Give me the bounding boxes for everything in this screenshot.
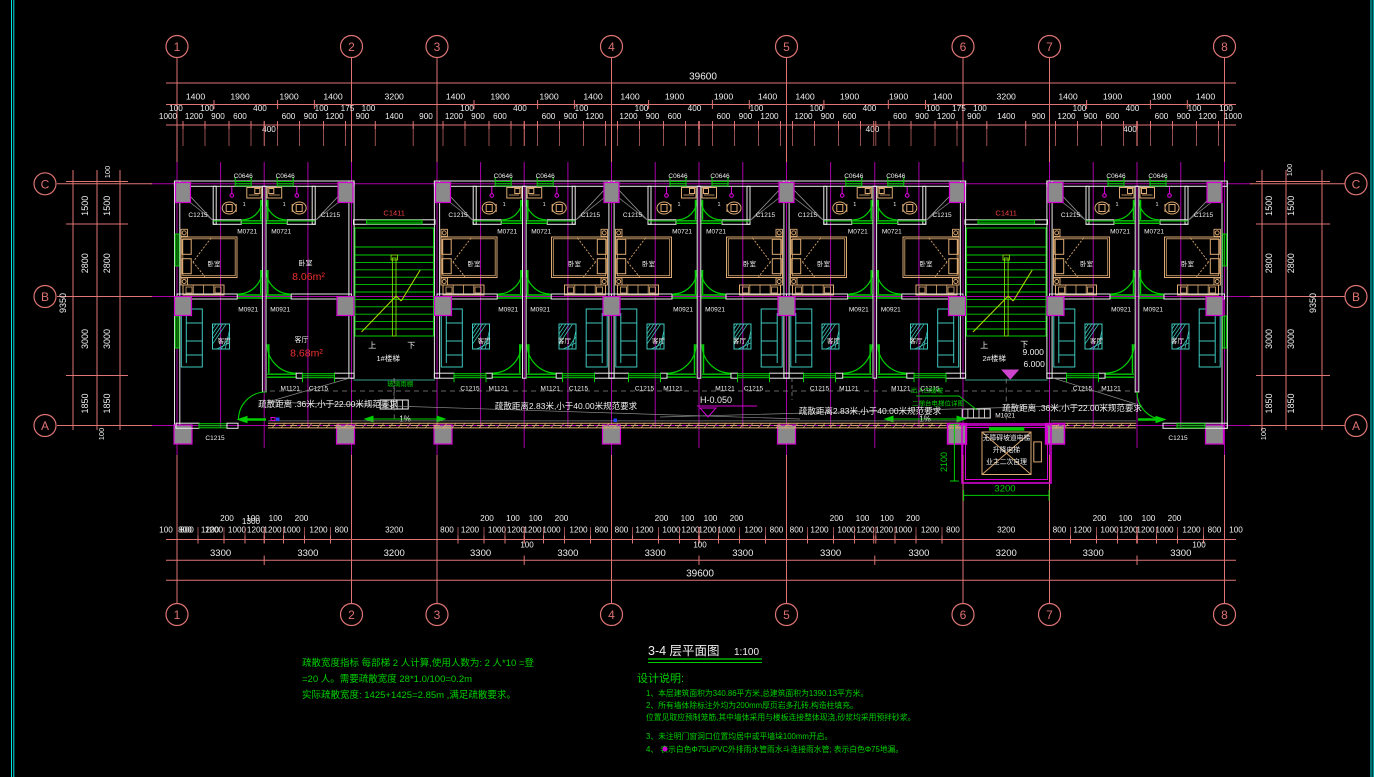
svg-text:C0646: C0646 [536,173,556,180]
svg-text:1200: 1200 [569,526,588,535]
svg-text:6.000: 6.000 [1024,359,1046,369]
svg-text:1900: 1900 [889,92,908,102]
svg-text:100: 100 [169,104,183,113]
svg-text:1900: 1900 [230,92,249,102]
svg-text:900: 900 [739,112,753,121]
svg-text:1: 1 [503,202,506,208]
svg-text:C: C [41,177,50,191]
svg-text:900: 900 [564,112,578,121]
svg-text:800: 800 [1208,526,1222,535]
svg-text:600: 600 [282,112,296,121]
svg-text:1400: 1400 [758,92,777,102]
svg-text:1200: 1200 [1073,526,1092,535]
svg-text:M0721: M0721 [706,229,726,236]
svg-text:8: 8 [1221,40,1228,54]
svg-text:900: 900 [471,112,485,121]
svg-text:C1411: C1411 [995,209,1017,218]
svg-text:200: 200 [655,514,669,523]
svg-text:100: 100 [575,104,589,113]
svg-text:B: B [1352,290,1360,304]
svg-text:无障碍坡道电梯: 无障碍坡道电梯 [983,433,1031,442]
svg-text:100: 100 [704,514,718,523]
svg-text:1900: 1900 [279,92,298,102]
svg-text:卧室: 卧室 [743,259,757,268]
svg-text:8: 8 [1221,608,1228,622]
svg-text:客厅: 客厅 [478,336,492,345]
svg-text:1:100: 1:100 [734,647,759,658]
svg-text:100: 100 [810,104,824,113]
svg-text:1400: 1400 [795,92,814,102]
svg-text:175: 175 [952,104,966,113]
svg-text:二梯台电梯位详图: 二梯台电梯位详图 [912,399,964,408]
svg-text:卧室: 卧室 [1080,259,1094,268]
svg-text:3300: 3300 [210,548,231,559]
svg-text:900: 900 [1084,112,1098,121]
svg-text:M1121: M1121 [488,386,508,393]
svg-text:200: 200 [220,514,234,523]
svg-text:A: A [41,419,49,433]
svg-text:1200: 1200 [921,526,940,535]
svg-text:C1215: C1215 [205,435,225,442]
svg-text:39600: 39600 [686,569,714,580]
svg-text:3200: 3200 [384,548,405,559]
svg-text:1400: 1400 [997,112,1016,121]
svg-text:C0646: C0646 [1106,173,1126,180]
svg-text:100: 100 [1285,164,1294,177]
svg-text:3200: 3200 [385,526,404,535]
svg-text:C0646: C0646 [494,173,514,180]
svg-text:3200: 3200 [996,548,1017,559]
svg-text:3300: 3300 [1083,548,1104,559]
svg-text:1200: 1200 [445,112,464,121]
svg-text:3200: 3200 [997,526,1016,535]
svg-text:卧室: 卧室 [920,259,934,268]
svg-text:1400: 1400 [323,92,342,102]
svg-text:H-0.050: H-0.050 [700,395,732,405]
svg-text:1200: 1200 [619,112,638,121]
svg-text:2800: 2800 [80,253,90,273]
svg-text:100: 100 [1259,428,1268,441]
svg-text:卧室: 卧室 [299,259,313,268]
svg-text:1500: 1500 [80,196,90,216]
svg-text:100: 100 [362,104,376,113]
svg-text:M0921: M0921 [881,307,901,314]
svg-text:1200: 1200 [760,112,779,121]
svg-text:1900: 1900 [714,92,733,102]
svg-text:3000: 3000 [1286,329,1296,349]
svg-text:200: 200 [730,514,744,523]
svg-text:M0721: M0721 [672,229,692,236]
svg-text:3000: 3000 [80,329,90,349]
svg-text:M0721: M0721 [848,229,868,236]
svg-text:C1215: C1215 [569,386,589,393]
svg-text:客厅: 客厅 [1171,336,1185,345]
svg-text:900: 900 [211,112,225,121]
svg-text:600: 600 [717,112,731,121]
svg-text:1%: 1% [399,415,411,424]
svg-text:100: 100 [1119,514,1133,523]
svg-text:200: 200 [906,514,920,523]
svg-text:C1215: C1215 [798,212,818,219]
svg-text:1: 1 [283,202,286,208]
svg-text:M0921: M0921 [530,307,550,314]
svg-text:1200: 1200 [856,526,875,535]
svg-text:C1215: C1215 [810,386,830,393]
svg-text:900: 900 [1032,112,1046,121]
svg-text:1: 1 [243,202,246,208]
svg-text:M1121: M1121 [280,386,300,393]
svg-text:1000: 1000 [228,526,247,535]
svg-text:3300: 3300 [732,548,753,559]
svg-text:M0721: M0721 [531,229,551,236]
svg-text:1200: 1200 [1198,112,1217,121]
svg-text:1200: 1200 [875,526,894,535]
svg-text:100: 100 [269,514,283,523]
svg-text:客厅: 客厅 [827,336,841,345]
svg-text:100: 100 [973,104,987,113]
svg-text:客厅: 客厅 [558,336,572,345]
svg-text:M0721: M0721 [1144,229,1164,236]
svg-text:A: A [1352,419,1360,433]
svg-text:C1215: C1215 [635,386,655,393]
svg-text:卧室: 卧室 [642,259,656,268]
svg-text:1400: 1400 [933,92,952,102]
svg-text:100: 100 [97,428,106,441]
svg-text:200: 200 [295,514,309,523]
svg-text:M0721: M0721 [237,229,257,236]
svg-text:M0921: M0921 [1111,307,1131,314]
svg-text:设计说明:: 设计说明: [637,671,684,685]
svg-text:8.06m²: 8.06m² [292,271,325,283]
svg-text:C1215: C1215 [932,212,952,219]
svg-text:2#楼梯: 2#楼梯 [983,353,1007,363]
svg-text:3、未注明门窗洞口位置均居中或平墙垛100mm开启。: 3、未注明门窗洞口位置均居中或平墙垛100mm开启。 [646,731,832,741]
svg-text:M1121: M1121 [540,386,560,393]
svg-text:1900: 1900 [1103,92,1122,102]
svg-text:1400: 1400 [1196,92,1215,102]
svg-text:9.000: 9.000 [1023,347,1045,357]
svg-text:1000: 1000 [282,526,301,535]
svg-text:C0646: C0646 [276,173,296,180]
svg-text:5: 5 [783,40,790,54]
svg-text:C1215: C1215 [1194,212,1214,219]
svg-text:1%: 1% [919,415,931,424]
svg-text:200: 200 [555,514,569,523]
svg-text:客厅: 客厅 [295,335,309,344]
svg-text:3300: 3300 [908,548,929,559]
svg-text:1200: 1200 [309,526,328,535]
svg-text:900: 900 [304,112,318,121]
svg-text:M1121: M1121 [839,386,859,393]
svg-text:2800: 2800 [102,253,112,273]
svg-text:M0921: M0921 [1143,307,1163,314]
svg-text:客厅: 客厅 [652,336,666,345]
svg-text:M0921: M0921 [849,307,869,314]
svg-text:1: 1 [543,202,546,208]
svg-text:100: 100 [103,166,112,179]
svg-text:900: 900 [1177,112,1191,121]
svg-text:800: 800 [178,526,192,535]
svg-text:C1215: C1215 [1168,435,1188,442]
svg-text:C0646: C0646 [844,173,864,180]
svg-text:1200: 1200 [263,526,282,535]
svg-text:1900: 1900 [840,92,859,102]
svg-text:400: 400 [863,104,877,113]
svg-text:1: 1 [677,202,680,208]
svg-text:M0921: M0921 [673,307,693,314]
svg-text:1400: 1400 [385,112,404,121]
svg-text:175: 175 [341,104,355,113]
svg-text:3200: 3200 [385,92,404,102]
svg-text:M0921: M0921 [498,307,518,314]
svg-text:1400: 1400 [1058,92,1077,102]
svg-text:卧室: 卧室 [468,259,482,268]
svg-text:100: 100 [693,541,707,550]
svg-text:疏散宽度指标 每部梯 2 人计算,使用人数为:: 疏散宽度指标 每部梯 2 人计算,使用人数为: 2 人*10 =登 [302,657,534,669]
svg-text:100: 100 [200,104,214,113]
svg-text:1850: 1850 [1264,393,1274,413]
svg-text:3-4 层平面图: 3-4 层平面图 [648,644,720,658]
svg-text:100: 100 [880,514,894,523]
svg-text:1200: 1200 [1136,526,1155,535]
svg-text:C1215: C1215 [448,212,468,219]
svg-text:900: 900 [419,112,433,121]
svg-text:3200: 3200 [997,92,1016,102]
svg-text:客厅: 客厅 [733,336,747,345]
svg-text:1: 1 [1115,202,1118,208]
svg-text:疏散距离 .36米,小于22.00米规范要求: 疏散距离 .36米,小于22.00米规范要求 [1002,403,1142,413]
svg-text:2: 2 [348,40,355,54]
svg-text:1300: 1300 [242,517,261,526]
svg-text:1200: 1200 [681,526,700,535]
svg-text:1、本层建筑面积为340.86平方米,总建筑面积为1390.: 1、本层建筑面积为340.86平方米,总建筑面积为1390.13平方米。 [646,688,868,698]
svg-text:100: 100 [856,514,870,523]
svg-text:上: 上 [368,341,376,350]
svg-text:100: 100 [635,104,649,113]
svg-text:1000: 1000 [717,526,736,535]
svg-text:1000: 1000 [837,526,856,535]
svg-text:3300: 3300 [820,548,841,559]
svg-text:1: 1 [174,40,181,54]
svg-text:1000: 1000 [488,526,507,535]
svg-text:1200: 1200 [585,112,604,121]
svg-text:C0646: C0646 [886,173,906,180]
svg-text:600: 600 [1106,112,1120,121]
svg-text:600: 600 [843,112,857,121]
svg-text:2800: 2800 [1286,253,1296,273]
svg-text:1200: 1200 [1182,526,1201,535]
svg-text:实际疏散宽度: 1425+1425=2.85m: 实际疏散宽度: 1425+1425=2.85m ,满足疏散要求。 [302,689,516,701]
svg-text:800: 800 [595,526,609,535]
svg-text:1000: 1000 [1100,526,1119,535]
svg-text:1200: 1200 [794,112,813,121]
svg-text:1000: 1000 [542,526,561,535]
svg-text:3300: 3300 [1170,548,1191,559]
svg-text:7: 7 [1046,40,1053,54]
svg-text:100: 100 [1229,526,1243,535]
svg-text:100: 100 [159,526,173,535]
svg-text:1850: 1850 [80,393,90,413]
svg-text:玻璃雨棚: 玻璃雨棚 [387,379,414,388]
svg-text:8.68m²: 8.68m² [290,348,323,360]
svg-text:1900: 1900 [665,92,684,102]
svg-text:4、 表示白色Φ75UPVC外排雨水管雨水斗连接雨水管;: 4、 表示白色Φ75UPVC外排雨水管雨水斗连接雨水管; 表示白色Φ75地漏。 [646,744,903,754]
svg-text:1: 1 [174,608,181,622]
svg-text:1000: 1000 [1155,526,1174,535]
svg-text:C1215: C1215 [1073,386,1093,393]
svg-text:2100: 2100 [939,452,949,472]
svg-text:1000: 1000 [1224,112,1243,121]
svg-text:400: 400 [253,104,267,113]
svg-text:1200: 1200 [523,526,542,535]
svg-text:100: 100 [1219,104,1233,113]
svg-text:卧室: 卧室 [817,259,831,268]
svg-text:1900: 1900 [490,92,509,102]
svg-text:B: B [41,290,49,304]
svg-text:600: 600 [668,112,682,121]
svg-text:1400: 1400 [583,92,602,102]
svg-text:疏散距离2.83米,小于40.00米规范要求: 疏散距离2.83米,小于40.00米规范要求 [495,401,638,411]
svg-text:800: 800 [440,526,454,535]
svg-text:400: 400 [1126,104,1140,113]
svg-text:1200: 1200 [1119,526,1138,535]
svg-text:C0646: C0646 [710,173,730,180]
svg-text:3200: 3200 [994,484,1015,495]
svg-text:3300: 3300 [557,548,578,559]
svg-text:C1215: C1215 [623,212,643,219]
svg-text:900: 900 [821,112,835,121]
svg-text:3000: 3000 [102,329,112,349]
svg-text:M1021: M1021 [995,413,1015,420]
svg-text:M1121: M1121 [891,386,911,393]
svg-text:400: 400 [513,104,527,113]
svg-text:2: 2 [348,608,355,622]
svg-text:39600: 39600 [689,72,717,83]
svg-text:200: 200 [1093,514,1107,523]
svg-text:900: 900 [356,112,370,121]
svg-text:=20 人。需要疏散宽度 28*1.0/100=0: =20 人。需要疏散宽度 28*1.0/100=0.2m [302,673,472,685]
svg-text:1200: 1200 [744,526,763,535]
svg-text:C0646: C0646 [1148,173,1168,180]
svg-text:2、所有墙体除标注外均为200mm厚页岩多孔砖,构造柱填充。: 2、所有墙体除标注外均为200mm厚页岩多孔砖,构造柱填充。 [646,700,858,710]
svg-text:100: 100 [1142,514,1156,523]
svg-text:1200: 1200 [205,526,224,535]
svg-text:1000: 1000 [159,112,178,121]
svg-text:800: 800 [1053,526,1067,535]
svg-text:C1215: C1215 [188,212,208,219]
svg-text:C1411: C1411 [383,209,405,218]
svg-text:100: 100 [506,514,520,523]
svg-text:600: 600 [542,112,556,121]
svg-text:上: 上 [980,341,988,350]
svg-text:100: 100 [520,541,534,550]
svg-text:1850: 1850 [1286,393,1296,413]
svg-text:C1215: C1215 [460,386,480,393]
svg-text:100: 100 [315,104,329,113]
svg-text:1200: 1200 [1057,112,1076,121]
svg-text:100: 100 [926,104,940,113]
svg-text:C1215: C1215 [744,386,764,393]
svg-text:900: 900 [915,112,929,121]
svg-text:7: 7 [1046,608,1053,622]
svg-text:M1121: M1121 [1101,386,1121,393]
svg-text:1200: 1200 [635,526,654,535]
svg-text:600: 600 [893,112,907,121]
svg-text:C0646: C0646 [668,173,688,180]
svg-text:600: 600 [233,112,247,121]
svg-text:M0721: M0721 [497,229,517,236]
svg-text:800: 800 [946,526,960,535]
svg-text:客厅: 客厅 [1090,336,1104,345]
svg-text:1200: 1200 [698,526,717,535]
svg-text:900: 900 [967,112,981,121]
svg-text:4: 4 [608,40,615,54]
svg-text:1: 1 [1155,202,1158,208]
svg-text:M0721: M0721 [1110,229,1130,236]
svg-text:1900: 1900 [539,92,558,102]
svg-text:900: 900 [646,112,660,121]
svg-text:C: C [1352,177,1361,191]
svg-text:疏散距离 .36米,小于22.00米规范要求: 疏散距离 .36米,小于22.00米规范要求 [258,399,398,409]
svg-text:升降电梯: 升降电梯 [993,445,1020,454]
svg-text:C0646: C0646 [234,173,254,180]
svg-text:3300: 3300 [645,548,666,559]
svg-text:800: 800 [770,526,784,535]
svg-text:1850: 1850 [102,393,112,413]
svg-text:业主二次自理: 业主二次自理 [986,457,1027,466]
svg-text:200: 200 [480,514,494,523]
svg-text:位置见取应预制笼筋,其中墙体采用与楼板连接整体现浇,砂浆均采: 位置见取应预制笼筋,其中墙体采用与楼板连接整体现浇,砂浆均采用预拌砂浆。 [646,712,915,722]
svg-text:M0921: M0921 [705,307,725,314]
svg-text:C1215: C1215 [1061,212,1081,219]
svg-text:1400: 1400 [186,92,205,102]
svg-text:C1215: C1215 [321,212,341,219]
svg-text:卧室: 卧室 [568,259,582,268]
svg-text:卧室: 卧室 [208,259,222,268]
svg-text:1400: 1400 [446,92,465,102]
svg-text:1000: 1000 [662,526,681,535]
svg-text:400: 400 [1123,125,1137,134]
svg-text:1200: 1200 [185,112,204,121]
svg-text:6: 6 [960,40,967,54]
svg-text:3300: 3300 [297,548,318,559]
svg-text:1400: 1400 [620,92,639,102]
svg-text:600: 600 [1155,112,1169,121]
svg-text:1000: 1000 [894,526,913,535]
svg-text:9350: 9350 [58,293,68,313]
svg-text:客厅: 客厅 [218,336,232,345]
svg-text:1200: 1200 [937,112,956,121]
svg-text:9350: 9350 [1308,293,1318,313]
svg-text:1: 1 [717,202,720,208]
svg-text:4: 4 [608,608,615,622]
svg-text:800: 800 [790,526,804,535]
svg-text:800: 800 [615,526,629,535]
svg-text:100: 100 [460,104,474,113]
svg-text:200: 200 [1168,514,1182,523]
svg-text:C1215: C1215 [581,212,601,219]
svg-text:1#楼梯: 1#楼梯 [377,353,401,363]
svg-text:6: 6 [960,608,967,622]
svg-text:1500: 1500 [1264,196,1274,216]
svg-text:1500: 1500 [102,196,112,216]
svg-text:1200: 1200 [325,112,344,121]
svg-text:1900: 1900 [1152,92,1171,102]
svg-text:400: 400 [866,125,880,134]
svg-text:出入口缓坡: 出入口缓坡 [911,386,944,395]
svg-text:200: 200 [830,514,844,523]
svg-text:800: 800 [335,526,349,535]
